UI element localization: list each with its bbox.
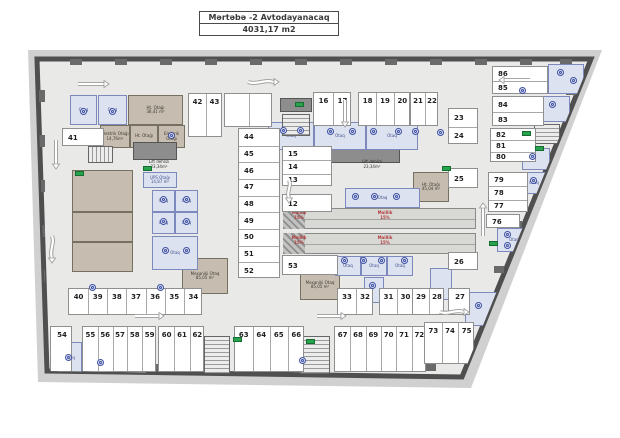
parking-stall-group: 2122 [410, 92, 438, 126]
parking-stall-number-82: 82 [496, 131, 506, 139]
vent-fan-icon [280, 127, 287, 134]
parking-stall-number-59: 59 [142, 331, 157, 339]
ramp-slope-label: Maillik 15% [286, 236, 312, 245]
parking-stall-number-41: 41 [68, 134, 78, 142]
vent-fan-icon [341, 257, 348, 264]
wall-column [115, 59, 127, 65]
stall-divider [239, 246, 279, 247]
parking-stall-group: 76 [486, 214, 520, 228]
vent-fan-icon [530, 177, 537, 184]
parking-stall-group: 4243 [188, 93, 222, 137]
parking-stall-number-60: 60 [159, 331, 174, 339]
ramp-slope-label: Maillik 15% [372, 236, 398, 245]
tan-room: Ht. Otağı 38,41 m² [128, 95, 183, 125]
parking-stall-number-45: 45 [244, 150, 254, 158]
vent-fan-icon [529, 153, 536, 160]
vent-fan-icon [369, 282, 376, 289]
shaft-room [133, 142, 177, 160]
parking-stall-number-22: 22 [425, 97, 439, 105]
parking-stall-number-85: 85 [498, 84, 508, 92]
vent-fan-icon [412, 128, 419, 135]
parking-stall-number-61: 61 [174, 331, 189, 339]
parking-stall-group: 25 [448, 168, 478, 188]
vent-fan-icon [168, 132, 175, 139]
blue-room: Otaq [387, 256, 413, 276]
tan-room [72, 242, 133, 272]
parking-stall-number-35: 35 [165, 293, 184, 301]
vent-fan-icon [65, 354, 72, 361]
vent-fan-icon [157, 284, 164, 291]
parking-stall-number-80: 80 [496, 153, 506, 161]
parking-stall-group: 40393837363534 [68, 288, 202, 315]
stall-divider [239, 212, 279, 213]
parking-stall-number-36: 36 [146, 293, 165, 301]
parking-stall-number-84: 84 [498, 101, 508, 109]
parking-stall-number-32: 32 [356, 293, 374, 301]
vent-fan-icon [401, 257, 408, 264]
stall-divider [239, 179, 279, 180]
parking-stall-number-81: 81 [496, 142, 506, 150]
parking-stall-number-75: 75 [458, 327, 475, 335]
stall-divider [239, 146, 279, 147]
parking-stall-group [224, 93, 272, 127]
stair [204, 336, 230, 374]
vent-fan-icon [360, 257, 367, 264]
parking-stall-number-68: 68 [350, 331, 365, 339]
parking-stall-group: 181920 [358, 92, 410, 126]
blue-room: UPS Otağı 14,87 m² [143, 172, 177, 188]
parking-stall-number-62: 62 [190, 331, 205, 339]
parking-stall-number-73: 73 [425, 327, 442, 335]
ramp-slope-label: Maillik 15% [286, 211, 312, 220]
wall-column [475, 59, 487, 65]
wall-column [385, 59, 397, 65]
wall-column [205, 59, 217, 65]
core-label: Lift dehlizi 23,34m² [348, 160, 396, 169]
exit-sign [233, 337, 242, 342]
exit-sign [306, 339, 315, 344]
parking-stall-group: 2324 [448, 108, 478, 144]
stall-divider [239, 262, 279, 263]
stair [534, 124, 560, 144]
parking-stall-number-28: 28 [429, 293, 445, 301]
parking-stall-number-67: 67 [335, 331, 350, 339]
parking-stall-group: 606162 [158, 326, 204, 372]
stall-divider [239, 196, 279, 197]
parking-stall-number-31: 31 [380, 293, 397, 301]
vent-fan-icon [109, 108, 116, 115]
vent-fan-icon [349, 128, 356, 135]
tan-room [72, 212, 133, 242]
parking-stall-number-66: 66 [288, 331, 306, 339]
parking-stall-number-23: 23 [454, 114, 464, 122]
parking-stall-group: 27 [448, 288, 470, 315]
stall-divider [283, 160, 331, 161]
parking-stall-group: 3130 [379, 288, 413, 315]
parking-stall-number-19: 19 [376, 97, 393, 105]
stair [300, 336, 330, 374]
parking-stall-number-42: 42 [189, 98, 206, 106]
parking-stall-number-14: 14 [288, 163, 298, 171]
parking-stall-number-18: 18 [359, 97, 376, 105]
parking-stall-group: 26 [448, 252, 478, 270]
vent-fan-icon [395, 128, 402, 135]
wall-column [520, 59, 532, 65]
vent-fan-icon [370, 128, 377, 135]
parking-stall-number-79: 79 [494, 176, 504, 184]
parking-stall-group: 2928 [412, 288, 444, 315]
parking-stall-group: 12 [282, 194, 332, 212]
parking-stall-number-38: 38 [107, 293, 126, 301]
vent-fan-icon [97, 359, 104, 366]
vent-fan-icon [393, 193, 400, 200]
parking-stall-number-47: 47 [244, 183, 254, 191]
exit-sign [442, 166, 451, 171]
parking-stall-number-43: 43 [206, 98, 223, 106]
parking-stall-number-21: 21 [411, 97, 425, 105]
blue-room: Otaq [335, 256, 361, 276]
parking-stall-number-71: 71 [396, 331, 411, 339]
floor-area: 4031,17 m2 [200, 23, 338, 35]
blue-room [540, 96, 570, 122]
tan-room [72, 170, 133, 212]
parking-stall-number-15: 15 [288, 150, 298, 158]
parking-stall-group: 3332 [337, 288, 373, 315]
vent-fan-icon [371, 193, 378, 200]
vent-fan-icon [183, 247, 190, 254]
blue-room: Otaq [366, 122, 418, 150]
blue-room [548, 64, 584, 94]
parking-stall-group: 444546474849505152 [238, 128, 280, 278]
parking-stall-number-17: 17 [333, 97, 352, 105]
parking-stall-group: 676869707172 [334, 326, 426, 372]
exit-sign [522, 131, 531, 136]
parking-stall-number-46: 46 [244, 167, 254, 175]
parking-stall-group: 63646566 [234, 326, 304, 372]
vent-fan-icon [504, 231, 511, 238]
parking-stall-group: 1617 [313, 92, 351, 126]
parking-stall-number-44: 44 [244, 133, 254, 141]
parking-stall-number-56: 56 [98, 331, 113, 339]
parking-stall-group: 797877 [488, 172, 528, 212]
floor-title: Mərtəbə -2 Avtodayanacaq [200, 12, 338, 23]
stall-divider [489, 186, 527, 187]
parking-stall-group: 54 [50, 326, 72, 372]
parking-stall-group: 5556575859 [82, 326, 156, 372]
parking-stall-number-48: 48 [244, 200, 254, 208]
vent-fan-icon [80, 108, 87, 115]
tan-room: Elektrik Otağı 14,76m² [100, 125, 130, 148]
parking-stall-number-29: 29 [413, 293, 429, 301]
wall-column [494, 266, 504, 273]
parking-stall-number-76: 76 [492, 218, 502, 226]
vent-fan-icon [299, 357, 306, 364]
parking-stall-number-40: 40 [69, 293, 88, 301]
stall-divider [283, 174, 331, 175]
parking-stall-number-34: 34 [184, 293, 203, 301]
parking-stall-number-20: 20 [394, 97, 411, 105]
parking-stall-number-26: 26 [454, 258, 464, 266]
vent-fan-icon [160, 218, 167, 225]
parking-stall-number-37: 37 [126, 293, 145, 301]
wall-column [340, 59, 352, 65]
parking-stall-number-70: 70 [381, 331, 396, 339]
parking-stall-number-49: 49 [244, 217, 254, 225]
wall-column [70, 59, 82, 65]
title-box: Mərtəbə -2 Avtodayanacaq 4031,17 m2 [199, 11, 339, 36]
vent-fan-icon [519, 87, 526, 94]
parking-stall-number-25: 25 [454, 175, 464, 183]
vent-fan-icon [89, 284, 96, 291]
parking-stall-number-74: 74 [442, 327, 459, 335]
parking-stall-number-77: 77 [494, 202, 504, 210]
parking-stall-number-27: 27 [449, 293, 471, 301]
vent-fan-icon [160, 196, 167, 203]
parking-stall-number-78: 78 [494, 189, 504, 197]
parking-stall-group: 53 [282, 255, 338, 275]
wall-column [430, 59, 442, 65]
wall-column [160, 59, 172, 65]
vent-fan-icon [437, 129, 444, 136]
parking-stall-number-52: 52 [244, 267, 254, 275]
stair [88, 146, 113, 163]
parking-stall-number-13: 13 [288, 176, 298, 184]
exit-sign [295, 102, 304, 107]
vent-fan-icon [475, 302, 482, 309]
parking-stall-number-64: 64 [253, 331, 271, 339]
stall-divider [449, 127, 477, 128]
vent-fan-icon [504, 242, 511, 249]
parking-stall-number-33: 33 [338, 293, 356, 301]
parking-stall-group: 737475 [424, 322, 474, 364]
vent-fan-icon [557, 69, 564, 76]
parking-stall-number-69: 69 [366, 331, 381, 339]
parking-stall-number-24: 24 [454, 132, 464, 140]
vent-fan-icon [352, 193, 359, 200]
parking-stall-number-16: 16 [314, 97, 333, 105]
floor-plan-page: Mərtəbə -2 Avtodayanacaq 4031,17 m2 Mail… [0, 0, 620, 438]
exit-sign [75, 171, 84, 176]
parking-stall-number-86: 86 [498, 70, 508, 78]
stall-divider [493, 112, 543, 113]
parking-stall-number-57: 57 [113, 331, 128, 339]
vent-fan-icon [378, 257, 385, 264]
parking-stall-number-51: 51 [244, 250, 254, 258]
parking-stall-number-12: 12 [288, 200, 298, 208]
parking-stall-number-39: 39 [88, 293, 107, 301]
ramp-slope-label: Maillik 15% [372, 211, 398, 220]
vent-fan-icon [183, 196, 190, 203]
wall-column [250, 59, 262, 65]
parking-stall-group: 41 [62, 128, 104, 146]
parking-stall-number-55: 55 [83, 331, 98, 339]
stall-divider [239, 162, 279, 163]
parking-stall-number-54: 54 [51, 331, 73, 339]
parking-stall-number-53: 53 [288, 262, 298, 270]
blue-room: Otaq [152, 236, 198, 270]
parking-stall-group: 8483 [492, 96, 544, 126]
parking-stall-number-65: 65 [270, 331, 288, 339]
parking-stall-group: 151413 [282, 146, 332, 186]
vent-fan-icon [327, 128, 334, 135]
exit-sign [535, 146, 544, 151]
exit-sign [489, 241, 498, 246]
vent-fan-icon [183, 218, 190, 225]
parking-stall-number-83: 83 [498, 116, 508, 124]
stall-divider [493, 81, 547, 82]
stall-divider [239, 229, 279, 230]
stall-divider [489, 200, 527, 201]
vent-fan-icon [570, 77, 577, 84]
vent-fan-icon [162, 247, 169, 254]
vent-fan-icon [549, 101, 556, 108]
wall-column [295, 59, 307, 65]
parking-stall-number-50: 50 [244, 233, 254, 241]
stall-divider [249, 94, 250, 126]
vent-fan-icon [297, 127, 304, 134]
exit-sign [143, 166, 152, 171]
parking-stall-number-58: 58 [127, 331, 142, 339]
